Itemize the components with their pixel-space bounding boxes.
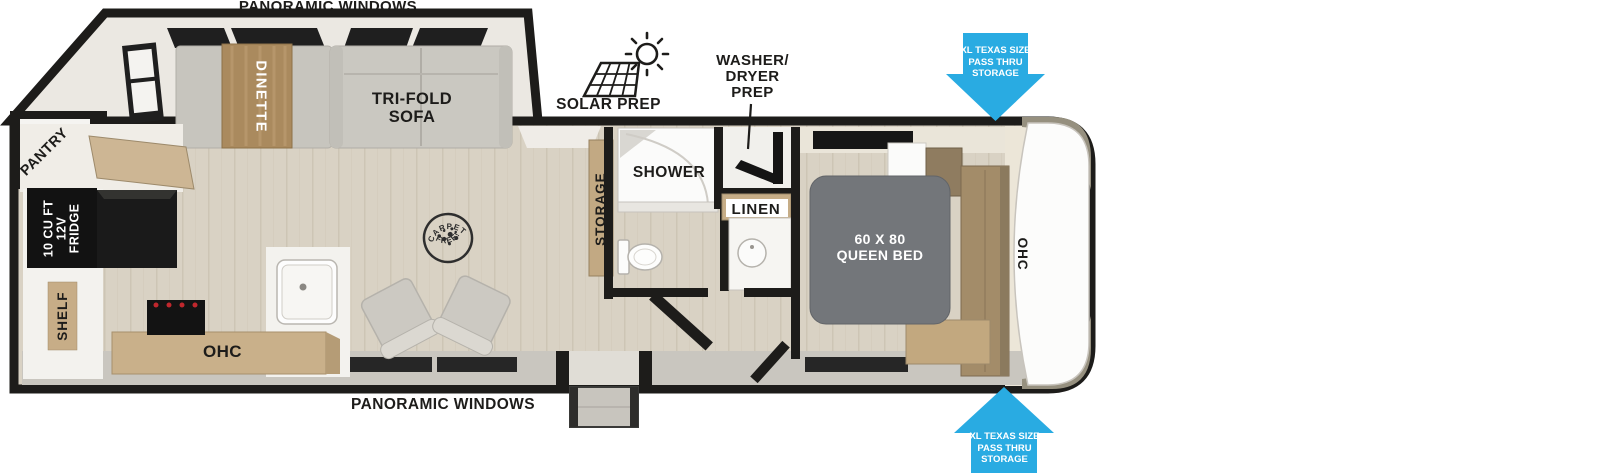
washer-dryer-prep-label: WASHER/ DRYER PREP xyxy=(700,53,805,101)
dinette-label: DINETTE xyxy=(252,47,267,147)
solar-panel-icon xyxy=(584,63,639,96)
storage-label: STORAGE xyxy=(594,159,608,259)
vanity-sink xyxy=(729,218,791,290)
fridge-label: 10 CU FT 12V FRIDGE xyxy=(43,179,82,279)
pass-thru-top-line1: XL TEXAS SIZE xyxy=(949,45,1042,57)
fridge-line3: FRIDGE xyxy=(69,179,82,279)
floorplan-canvas: CARPET FREE! xyxy=(0,0,1600,473)
entry-steps xyxy=(570,387,638,427)
panoramic-windows-top-label: PANORAMIC WINDOWS xyxy=(228,0,428,15)
bathroom-bottom-wall xyxy=(744,288,791,297)
door-jamb xyxy=(556,351,569,385)
linen-label: LINEN xyxy=(723,202,789,218)
window xyxy=(805,357,908,372)
pass-thru-top-line2: PASS THRU xyxy=(949,57,1042,69)
kitchen-sink xyxy=(277,260,337,324)
queen-bed-label: 60 X 80 QUEEN BED xyxy=(818,232,942,263)
bed-platform xyxy=(906,320,990,364)
panoramic-windows-bottom-label: PANORAMIC WINDOWS xyxy=(343,397,543,413)
entry-door-floor xyxy=(556,351,652,385)
ohc-kitchen-label: OHC xyxy=(175,343,270,361)
window xyxy=(348,357,432,372)
window xyxy=(344,28,413,48)
pass-thru-bottom-line3: STORAGE xyxy=(957,454,1052,466)
queen-bed-line1: 60 X 80 xyxy=(818,232,942,248)
pass-thru-top-label: XL TEXAS SIZE PASS THRU STORAGE xyxy=(949,45,1042,80)
shelf-label: SHELF xyxy=(56,266,70,366)
washer-dryer-line3: PREP xyxy=(700,85,805,101)
window xyxy=(412,28,488,48)
bedroom-wall xyxy=(791,127,800,359)
pass-thru-bottom-line1: XL TEXAS SIZE xyxy=(957,431,1052,443)
fridge xyxy=(97,190,177,268)
pass-thru-bottom-label: XL TEXAS SIZE PASS THRU STORAGE xyxy=(957,431,1052,466)
shower-label: SHOWER xyxy=(623,165,715,181)
solar-prep-label: SOLAR PREP xyxy=(536,97,681,113)
door-jamb xyxy=(639,351,652,385)
tri-fold-sofa-line2: SOFA xyxy=(352,109,472,127)
ohc-bedroom-label: OHC xyxy=(1015,204,1029,304)
pass-thru-bottom-line2: PASS THRU xyxy=(957,443,1052,455)
window xyxy=(437,357,517,372)
washer-dryer-line2: DRYER xyxy=(700,69,805,85)
pass-thru-top-line3: STORAGE xyxy=(949,68,1042,80)
stove xyxy=(147,300,205,335)
tri-fold-sofa-line1: TRI-FOLD xyxy=(352,91,472,109)
tri-fold-sofa-label: TRI-FOLD SOFA xyxy=(352,91,472,126)
sun-icon xyxy=(626,33,668,75)
queen-bed-line2: QUEEN BED xyxy=(818,248,942,264)
washer-dryer-line1: WASHER/ xyxy=(700,53,805,69)
